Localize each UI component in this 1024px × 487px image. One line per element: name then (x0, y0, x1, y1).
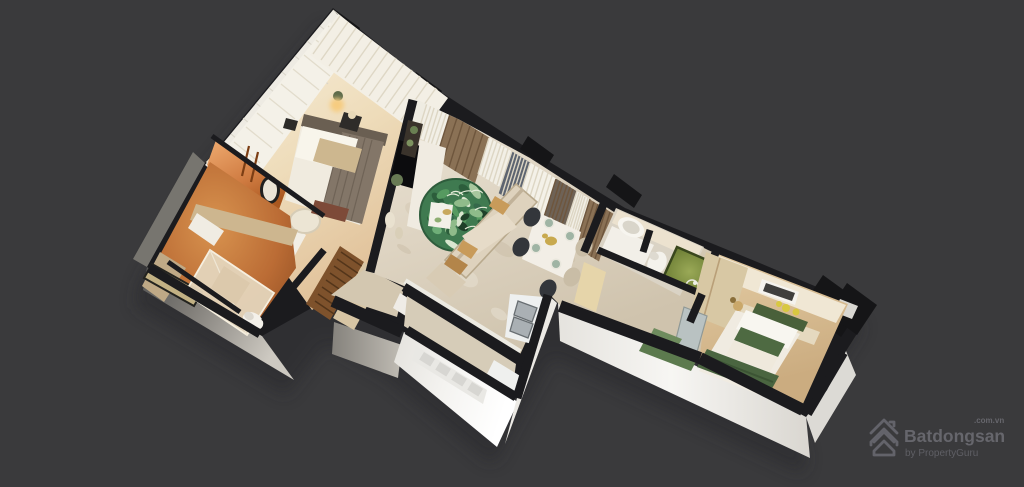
svg-text:Batdongsan: Batdongsan (904, 426, 1005, 446)
svg-text:.com.vn: .com.vn (974, 416, 1004, 425)
svg-text:by PropertyGuru: by PropertyGuru (905, 448, 978, 459)
